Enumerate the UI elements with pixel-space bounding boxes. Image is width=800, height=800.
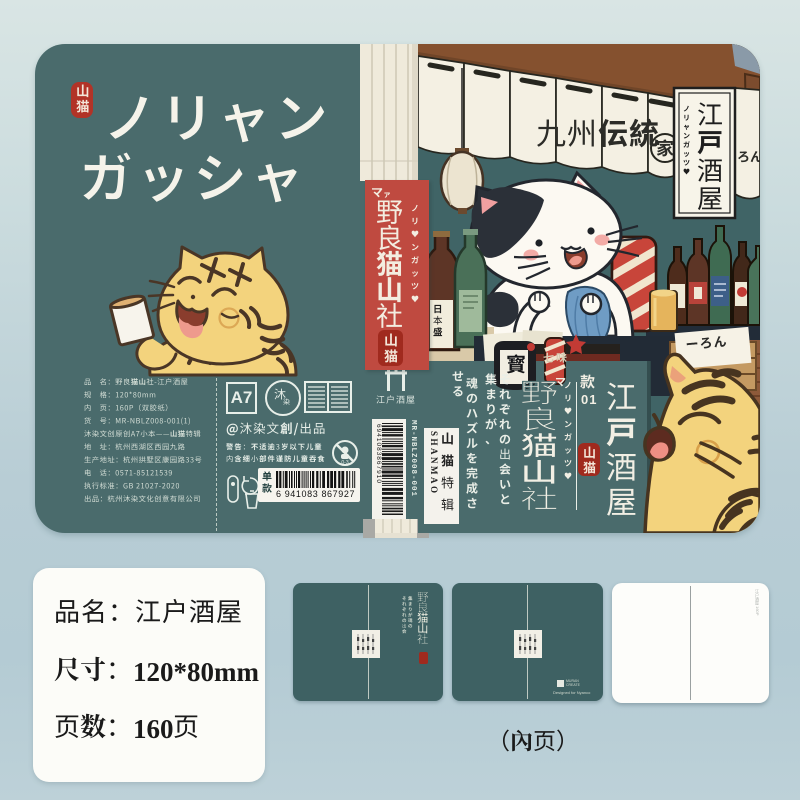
svg-text:0-3: 0-3 bbox=[341, 460, 348, 466]
